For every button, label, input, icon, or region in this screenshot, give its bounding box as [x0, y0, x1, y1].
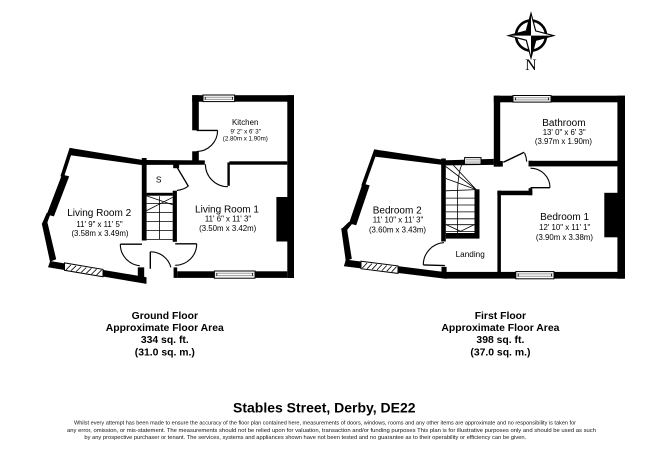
- svg-text:13' 0" x 6' 3": 13' 0" x 6' 3": [543, 128, 586, 137]
- svg-text:Approximate Floor Area: Approximate Floor Area: [441, 323, 559, 334]
- svg-text:(3.90m x 3.38m): (3.90m x 3.38m): [536, 233, 593, 242]
- svg-text:Kitchen: Kitchen: [232, 118, 258, 127]
- svg-text:398 sq. ft.: 398 sq. ft.: [476, 335, 524, 346]
- svg-text:Bedroom 1: Bedroom 1: [540, 212, 589, 223]
- svg-text:(2.80m x 1.90m): (2.80m x 1.90m): [223, 135, 268, 142]
- svg-text:(3.50m x 3.42m): (3.50m x 3.42m): [199, 224, 256, 233]
- svg-text:Whilst every attempt has been: Whilst every attempt has been made to en…: [74, 421, 576, 427]
- svg-text:12' 10" x 11' 1": 12' 10" x 11' 1": [539, 223, 590, 232]
- svg-text:First Floor: First Floor: [475, 311, 526, 322]
- svg-text:by any prospective purchaser o: by any prospective purchaser or tenant. …: [84, 435, 526, 441]
- svg-text:(3.58m x 3.49m): (3.58m x 3.49m): [71, 229, 128, 238]
- svg-text:N: N: [525, 57, 537, 74]
- svg-text:(37.0 sq. m.): (37.0 sq. m.): [470, 347, 530, 358]
- svg-text:11' 10" x 11' 3": 11' 10" x 11' 3": [373, 216, 424, 225]
- svg-text:S: S: [156, 174, 162, 184]
- svg-text:Landing: Landing: [456, 250, 486, 259]
- svg-text:334 sq. ft.: 334 sq. ft.: [141, 335, 189, 346]
- svg-text:Ground Floor: Ground Floor: [132, 311, 198, 322]
- svg-text:11' 6" x 11' 3": 11' 6" x 11' 3": [205, 215, 251, 224]
- svg-text:(3.97m x 1.90m): (3.97m x 1.90m): [535, 137, 592, 146]
- svg-text:any error, omission, or mis-st: any error, omission, or mis-statement. T…: [67, 428, 596, 434]
- svg-text:Living Room 2: Living Room 2: [67, 208, 131, 219]
- svg-text:11' 9" x 11' 5": 11' 9" x 11' 5": [76, 220, 122, 229]
- svg-text:Approximate Floor Area: Approximate Floor Area: [106, 323, 224, 334]
- svg-text:(3.60m x 3.43m): (3.60m x 3.43m): [369, 225, 426, 234]
- svg-text:(31.0 sq. m.): (31.0 sq. m.): [135, 347, 195, 358]
- svg-text:Stables Street, Derby, DE22: Stables Street, Derby, DE22: [233, 400, 416, 416]
